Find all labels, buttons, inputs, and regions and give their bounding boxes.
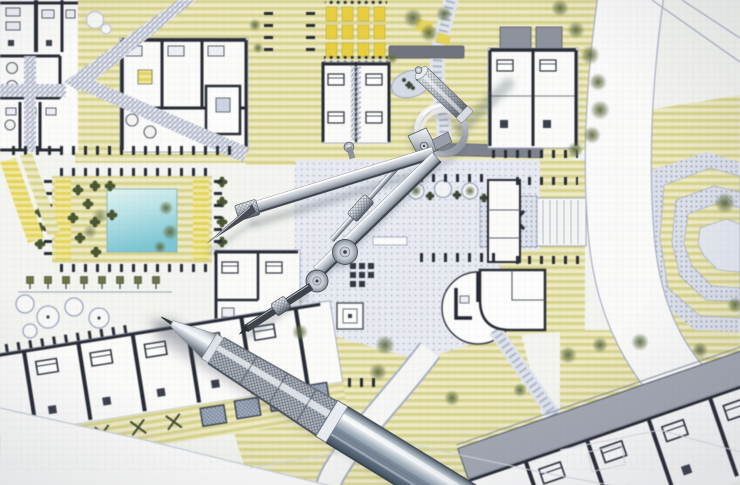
vignette-overlay (0, 0, 740, 485)
photo-canvas (0, 0, 740, 485)
